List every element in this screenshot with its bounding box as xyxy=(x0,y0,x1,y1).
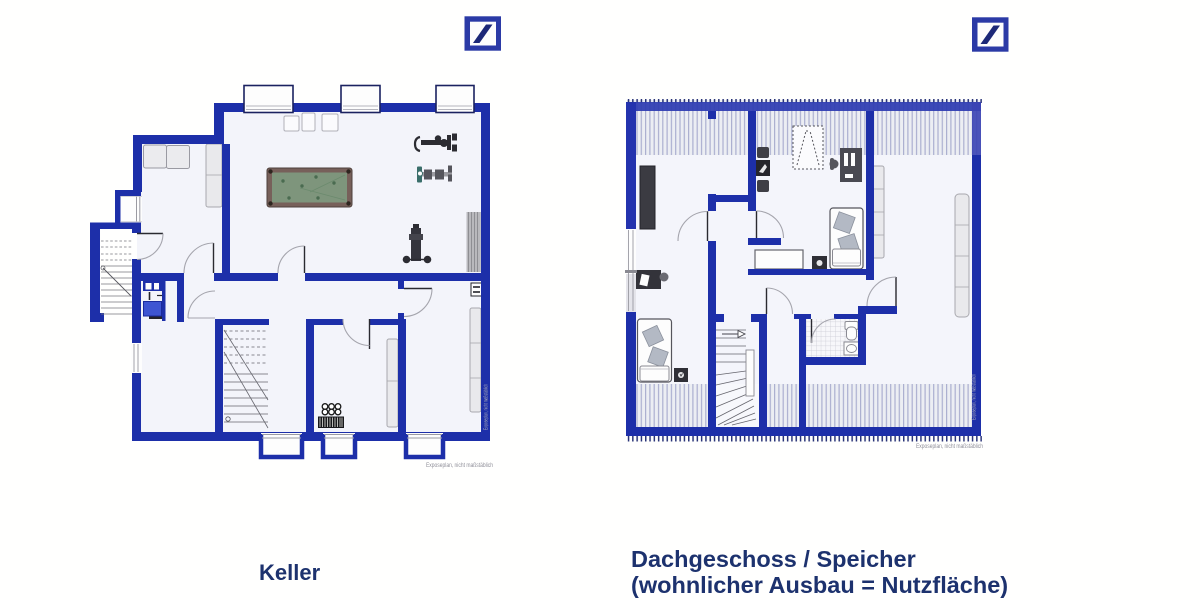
svg-text:(wohnlicher Ausbau = Nutzfläch: (wohnlicher Ausbau = Nutzfläche) xyxy=(631,572,1008,598)
svg-text:Exposeplan, nicht maßstäblich: Exposeplan, nicht maßstäblich xyxy=(972,374,978,420)
svg-text:Dachgeschoss / Speicher: Dachgeschoss / Speicher xyxy=(631,546,916,572)
svg-text:Exposeplan, nicht maßstäblich: Exposeplan, nicht maßstäblich xyxy=(426,463,493,469)
svg-text:Exposeplan, nicht maßstäblich: Exposeplan, nicht maßstäblich xyxy=(484,384,490,430)
svg-text:Keller: Keller xyxy=(259,560,321,585)
svg-text:Exposeplan, nicht maßstäblich: Exposeplan, nicht maßstäblich xyxy=(916,444,983,450)
